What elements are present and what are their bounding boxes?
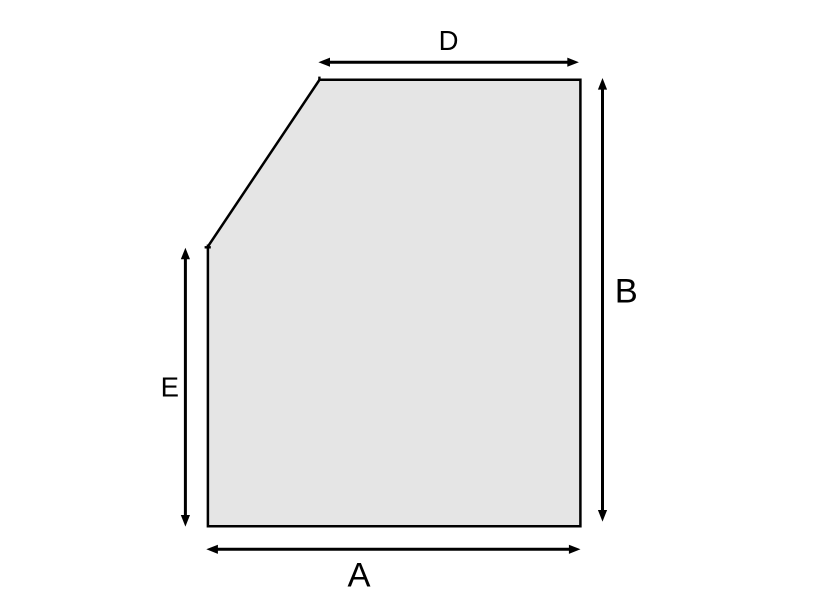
svg-text:B: B — [615, 272, 638, 310]
svg-text:D: D — [439, 25, 459, 56]
svg-text:A: A — [347, 557, 370, 595]
svg-text:E: E — [161, 371, 179, 402]
